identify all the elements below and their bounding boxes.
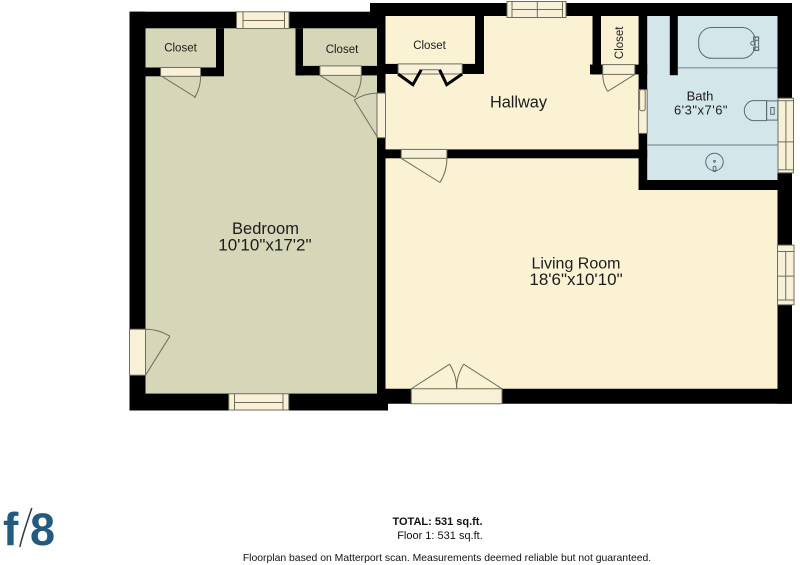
svg-text:Closet: Closet bbox=[326, 44, 359, 56]
svg-text:10'10"x17'2": 10'10"x17'2" bbox=[218, 236, 311, 255]
svg-text:6'3"x7'6": 6'3"x7'6" bbox=[674, 103, 728, 118]
svg-text:Closet: Closet bbox=[614, 26, 626, 59]
svg-text:Floorplan based on Matterport: Floorplan based on Matterport scan. Meas… bbox=[243, 553, 651, 564]
svg-text:Closet: Closet bbox=[164, 42, 197, 54]
svg-text:Hallway: Hallway bbox=[490, 94, 548, 112]
svg-text:8: 8 bbox=[30, 504, 55, 555]
svg-text:Bath: Bath bbox=[687, 88, 714, 103]
svg-text:f: f bbox=[3, 503, 19, 555]
svg-text:Closet: Closet bbox=[413, 40, 446, 52]
svg-text:TOTAL: 531 sq.ft.: TOTAL: 531 sq.ft. bbox=[392, 516, 482, 528]
svg-text:18'6"x10'10": 18'6"x10'10" bbox=[529, 270, 622, 289]
svg-text:Floor 1: 531 sq.ft.: Floor 1: 531 sq.ft. bbox=[397, 530, 483, 542]
